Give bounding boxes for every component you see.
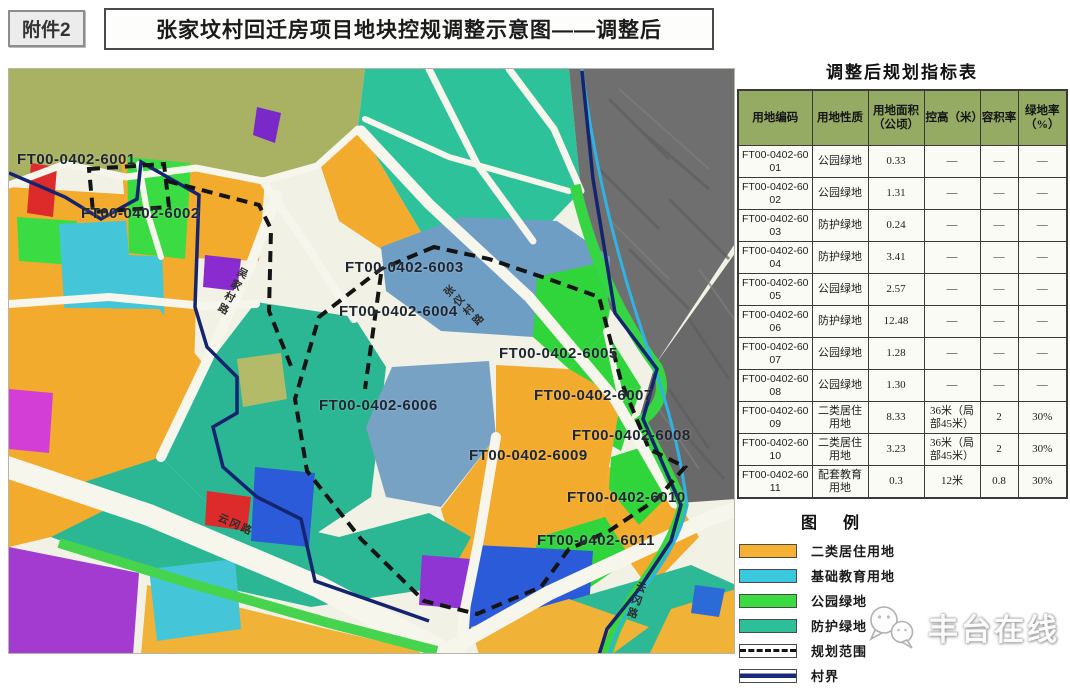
- cell-code: FT00-0402-6007: [738, 338, 812, 370]
- cell-far: —: [980, 242, 1018, 274]
- cell-use: 二类居住用地: [812, 402, 868, 434]
- cell-code: FT00-0402-6004: [738, 242, 812, 274]
- legend-item: 基础教育用地: [739, 566, 1067, 585]
- legend-swatch: [739, 569, 797, 583]
- cell-area: 1.28: [868, 338, 924, 370]
- table-row: FT00-0402-6008公园绿地1.30———: [738, 370, 1067, 402]
- legend-swatch: [739, 619, 797, 633]
- cell-height: —: [924, 146, 980, 178]
- cell-code: FT00-0402-6009: [738, 402, 812, 434]
- cell-height: 36米（局部45米）: [924, 434, 980, 466]
- cell-area: 0.24: [868, 210, 924, 242]
- cell-code: FT00-0402-6005: [738, 274, 812, 306]
- cell-height: —: [924, 338, 980, 370]
- column-header: 控高（米）: [924, 90, 980, 146]
- table-row: FT00-0402-6001公园绿地0.33———: [738, 146, 1067, 178]
- cell-far: —: [980, 178, 1018, 210]
- plot-label: FT00-0402-6005: [499, 345, 618, 362]
- indicator-panel: 调整后规划指标表 用地编码用地性质用地面积（公顷）控高（米）容积率绿地率（%） …: [737, 58, 1067, 691]
- cell-height: 36米（局部45米）: [924, 402, 980, 434]
- legend-label: 防护绿地: [811, 616, 867, 635]
- legend-swatch: [739, 594, 797, 608]
- legend-swatch: [739, 544, 797, 558]
- cell-green: —: [1018, 178, 1067, 210]
- cell-use: 公园绿地: [812, 370, 868, 402]
- cell-area: 3.41: [868, 242, 924, 274]
- cell-height: —: [924, 370, 980, 402]
- cell-far: —: [980, 274, 1018, 306]
- cell-green: —: [1018, 146, 1067, 178]
- cell-far: —: [980, 338, 1018, 370]
- cell-far: 0.8: [980, 466, 1018, 499]
- table-row: FT00-0402-6009二类居住用地8.3336米（局部45米）230%: [738, 402, 1067, 434]
- plot-label: FT00-0402-6008: [572, 427, 691, 444]
- watermark: 丰台在线: [866, 604, 1060, 650]
- plot-label: FT00-0402-6011: [537, 532, 655, 549]
- cell-far: —: [980, 370, 1018, 402]
- table-row: FT00-0402-6004防护绿地3.41———: [738, 242, 1067, 274]
- cell-use: 公园绿地: [812, 274, 868, 306]
- legend-label: 规划范围: [811, 641, 867, 660]
- legend-title: 图例: [801, 509, 1067, 533]
- cell-code: FT00-0402-6002: [738, 178, 812, 210]
- cell-area: 0.3: [868, 466, 924, 499]
- plot-label: FT00-0402-6009: [469, 447, 588, 464]
- cell-area: 1.31: [868, 178, 924, 210]
- cell-height: —: [924, 306, 980, 338]
- column-header: 用地面积（公顷）: [868, 90, 924, 146]
- plot-label: FT00-0402-6010: [567, 489, 686, 506]
- legend-label: 村界: [811, 666, 839, 685]
- column-header: 绿地率（%）: [1018, 90, 1067, 146]
- cell-code: FT00-0402-6003: [738, 210, 812, 242]
- cell-use: 防护绿地: [812, 242, 868, 274]
- page-title: 张家坟村回迁房项目地块控规调整示意图——调整后: [104, 8, 714, 50]
- cell-green: —: [1018, 210, 1067, 242]
- cell-area: 2.57: [868, 274, 924, 306]
- cell-green: —: [1018, 274, 1067, 306]
- plot-label: FT00-0402-6004: [339, 303, 458, 320]
- cell-use: 公园绿地: [812, 338, 868, 370]
- cell-code: FT00-0402-6008: [738, 370, 812, 402]
- plot-label: FT00-0402-6001: [17, 151, 136, 168]
- cell-use: 配套教育用地: [812, 466, 868, 499]
- cell-far: 2: [980, 402, 1018, 434]
- cell-area: 1.30: [868, 370, 924, 402]
- cell-area: 8.33: [868, 402, 924, 434]
- attachment-label: 附件2: [8, 10, 85, 47]
- cell-green: 30%: [1018, 434, 1067, 466]
- legend-label: 公园绿地: [811, 591, 867, 610]
- cell-green: —: [1018, 338, 1067, 370]
- cell-area: 12.48: [868, 306, 924, 338]
- column-header: 用地性质: [812, 90, 868, 146]
- cell-green: 30%: [1018, 466, 1067, 499]
- cell-code: FT00-0402-6001: [738, 146, 812, 178]
- table-row: FT00-0402-6002公园绿地1.31———: [738, 178, 1067, 210]
- legend-swatch: [739, 669, 797, 683]
- legend: 图例 二类居住用地基础教育用地公园绿地防护绿地规划范围村界: [737, 509, 1067, 685]
- cell-green: 30%: [1018, 402, 1067, 434]
- legend-item: 二类居住用地: [739, 541, 1067, 560]
- cell-far: —: [980, 306, 1018, 338]
- cell-height: 12米: [924, 466, 980, 499]
- cell-far: —: [980, 146, 1018, 178]
- cell-code: FT00-0402-6010: [738, 434, 812, 466]
- table-row: FT00-0402-6003防护绿地0.24———: [738, 210, 1067, 242]
- table-row: FT00-0402-6006防护绿地12.48———: [738, 306, 1067, 338]
- cell-area: 0.33: [868, 146, 924, 178]
- table-row: FT00-0402-6007公园绿地1.28———: [738, 338, 1067, 370]
- legend-swatch: [739, 644, 797, 658]
- legend-label: 基础教育用地: [811, 566, 895, 585]
- cell-use: 二类居住用地: [812, 434, 868, 466]
- cell-far: 2: [980, 434, 1018, 466]
- cell-area: 3.23: [868, 434, 924, 466]
- table-row: FT00-0402-6011配套教育用地0.312米0.830%: [738, 466, 1067, 499]
- cell-use: 公园绿地: [812, 178, 868, 210]
- indicator-table: 用地编码用地性质用地面积（公顷）控高（米）容积率绿地率（%） FT00-0402…: [737, 89, 1068, 499]
- cell-far: —: [980, 210, 1018, 242]
- cell-code: FT00-0402-6006: [738, 306, 812, 338]
- plot-label: FT00-0402-6007: [534, 387, 653, 404]
- table-row: FT00-0402-6010二类居住用地3.2336米（局部45米）230%: [738, 434, 1067, 466]
- legend-label: 二类居住用地: [811, 541, 895, 560]
- cell-height: —: [924, 178, 980, 210]
- cell-height: —: [924, 210, 980, 242]
- plot-label: FT00-0402-6003: [345, 259, 464, 276]
- plot-label: FT00-0402-6006: [319, 397, 438, 414]
- cell-green: —: [1018, 306, 1067, 338]
- watermark-text: 丰台在线: [928, 605, 1060, 649]
- wechat-icon: [866, 604, 920, 650]
- table-header-row: 用地编码用地性质用地面积（公顷）控高（米）容积率绿地率（%）: [738, 90, 1067, 146]
- cell-use: 防护绿地: [812, 210, 868, 242]
- plot-label: FT00-0402-6002: [81, 205, 200, 222]
- legend-item: 村界: [739, 666, 1067, 685]
- cell-use: 防护绿地: [812, 306, 868, 338]
- cell-green: —: [1018, 242, 1067, 274]
- cell-use: 公园绿地: [812, 146, 868, 178]
- table-title: 调整后规划指标表: [737, 58, 1067, 83]
- column-header: 容积率: [980, 90, 1018, 146]
- planning-map: FT00-0402-6001FT00-0402-6002FT00-0402-60…: [8, 68, 735, 654]
- cell-code: FT00-0402-6011: [738, 466, 812, 499]
- table-row: FT00-0402-6005公园绿地2.57———: [738, 274, 1067, 306]
- column-header: 用地编码: [738, 90, 812, 146]
- cell-green: —: [1018, 370, 1067, 402]
- cell-height: —: [924, 242, 980, 274]
- cell-height: —: [924, 274, 980, 306]
